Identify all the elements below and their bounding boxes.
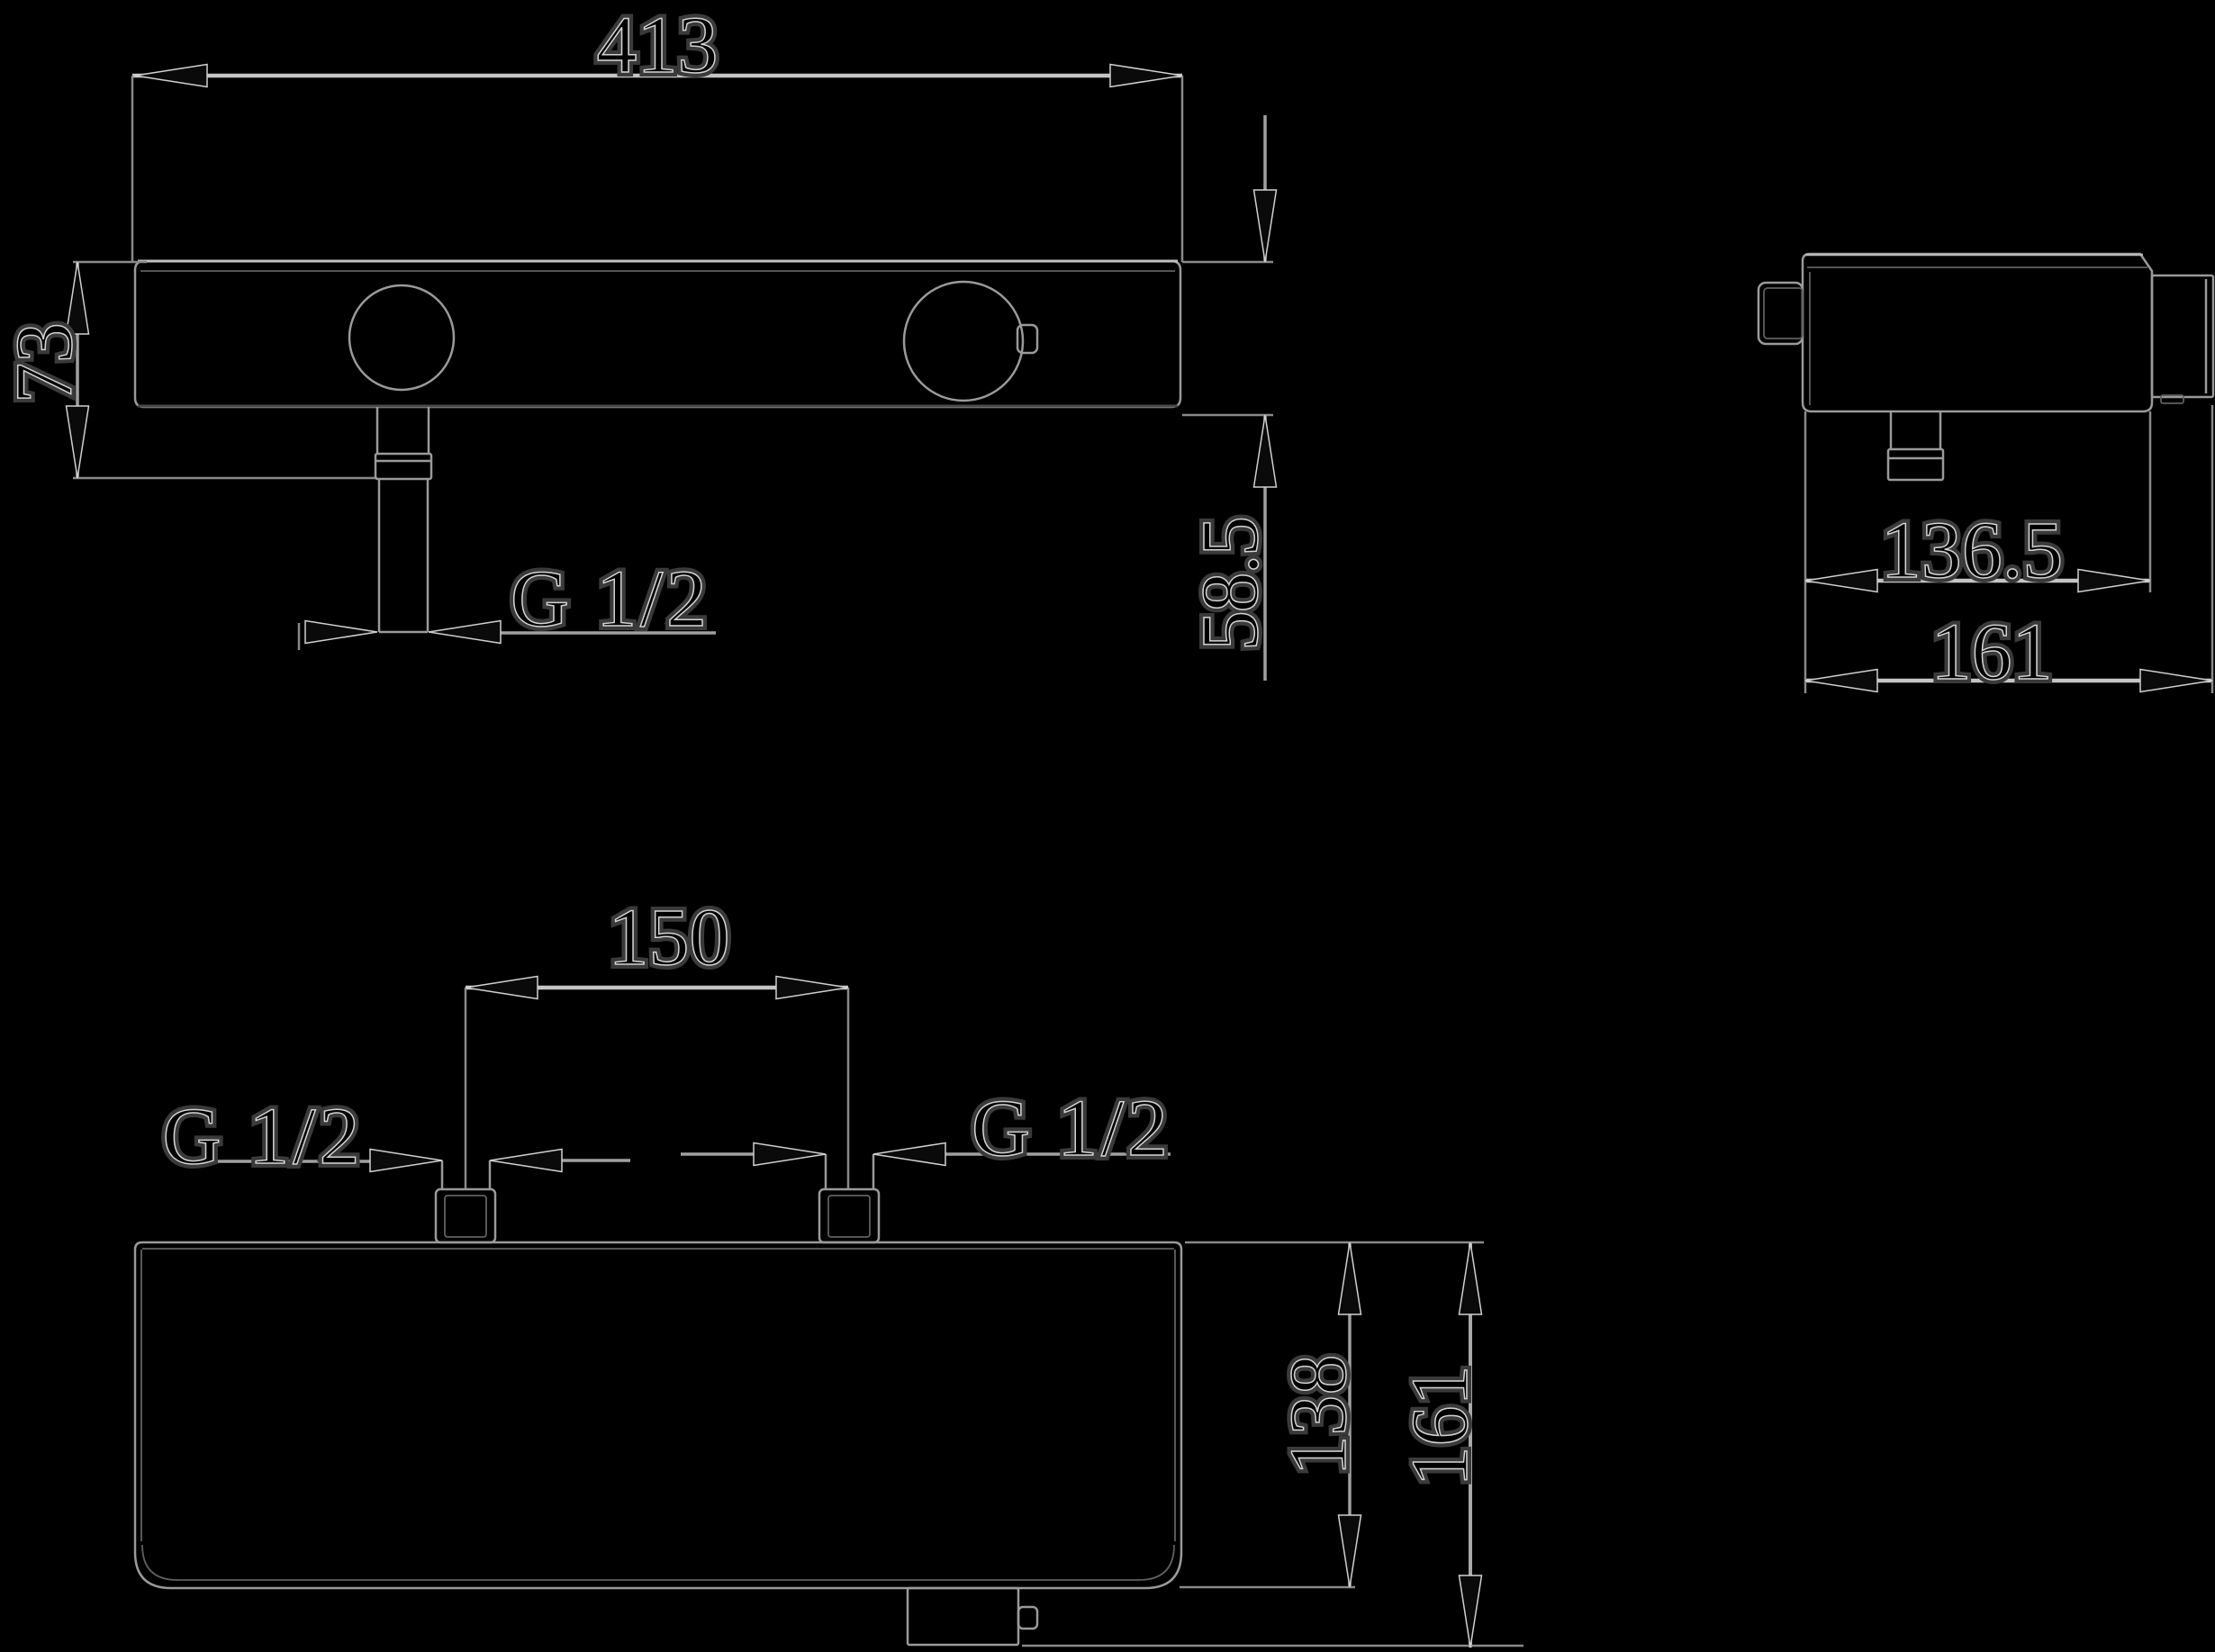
svg-text:G 1/2: G 1/2 (511, 555, 707, 644)
svg-text:58.5: 58.5 (1186, 516, 1275, 651)
svg-text:161: 161 (1931, 608, 2053, 697)
svg-text:G 1/2: G 1/2 (163, 1092, 360, 1181)
svg-text:138: 138 (1274, 1355, 1363, 1476)
svg-text:G 1/2: G 1/2 (972, 1084, 1168, 1173)
svg-text:136.5: 136.5 (1881, 506, 2064, 595)
svg-text:413: 413 (597, 1, 719, 90)
svg-text:73: 73 (0, 322, 89, 403)
svg-text:161: 161 (1396, 1366, 1485, 1487)
svg-text:150: 150 (609, 893, 730, 982)
